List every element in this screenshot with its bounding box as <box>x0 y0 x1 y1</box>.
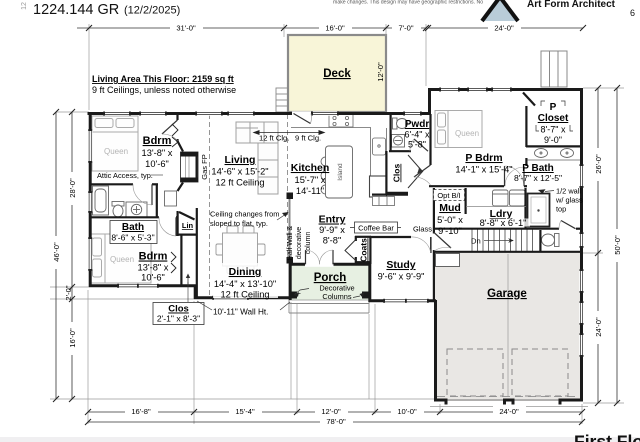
svg-text:Opt B/I: Opt B/I <box>437 191 460 200</box>
svg-text:9'-6" x 9'-9": 9'-6" x 9'-9" <box>378 272 425 282</box>
svg-text:Island: Island <box>337 163 344 181</box>
svg-text:P: P <box>550 102 557 113</box>
svg-text:9'-10": 9'-10" <box>438 226 462 236</box>
svg-text:1/2 wall: 1/2 wall <box>556 187 581 196</box>
svg-text:Attic Access, typ.: Attic Access, typ. <box>97 171 153 180</box>
svg-text:12 ft Ceiling: 12 ft Ceiling <box>220 290 269 300</box>
svg-text:Lin: Lin <box>182 221 194 230</box>
svg-text:5'-0" x: 5'-0" x <box>437 215 463 225</box>
svg-text:14'-11": 14'-11" <box>296 186 324 196</box>
svg-text:w/ glass: w/ glass <box>555 196 583 205</box>
svg-text:12'-0": 12'-0" <box>376 62 385 82</box>
svg-text:Porch: Porch <box>314 272 347 284</box>
svg-text:8'-8" x 6'-1": 8'-8" x 6'-1" <box>480 218 527 228</box>
svg-text:16'-8": 16'-8" <box>131 407 151 416</box>
svg-text:12: 12 <box>21 2 28 10</box>
svg-text:Living: Living <box>225 154 256 166</box>
svg-text:16'-0": 16'-0" <box>325 24 345 33</box>
svg-text:10'-6": 10'-6" <box>145 159 169 169</box>
svg-text:Coffee Bar: Coffee Bar <box>358 224 394 233</box>
svg-text:Deck: Deck <box>323 68 351 80</box>
svg-text:1224.144 GR: 1224.144 GR <box>33 2 119 18</box>
svg-text:14'-6" x 15'-2": 14'-6" x 15'-2" <box>211 167 268 177</box>
svg-text:First Floor: First Floor <box>574 432 640 442</box>
svg-text:24'-0": 24'-0" <box>499 407 519 416</box>
svg-text:8'-7" x: 8'-7" x <box>541 125 566 135</box>
svg-text:2'-1" x 8'-3": 2'-1" x 8'-3" <box>157 314 200 324</box>
svg-text:sloped to flat, typ.: sloped to flat, typ. <box>210 219 268 228</box>
svg-text:Dining: Dining <box>229 266 262 278</box>
svg-text:Coats: Coats <box>359 238 369 262</box>
svg-text:Columns: Columns <box>322 292 351 301</box>
svg-text:Pwdr: Pwdr <box>405 119 430 130</box>
svg-text:6'-4" x: 6'-4" x <box>405 130 430 140</box>
svg-text:78'-0": 78'-0" <box>326 417 346 426</box>
svg-text:Bdrm: Bdrm <box>139 251 168 263</box>
svg-text:Queen: Queen <box>455 129 479 138</box>
svg-text:14'-1" x 15'-4": 14'-1" x 15'-4" <box>455 165 512 175</box>
svg-text:decorative: decorative <box>296 227 303 259</box>
svg-text:7'-0": 7'-0" <box>398 24 413 33</box>
svg-text:12 ft Ceiling: 12 ft Ceiling <box>215 178 264 188</box>
svg-text:9 ft Ceilings, unless noted ot: 9 ft Ceilings, unless noted otherwise <box>92 85 236 95</box>
svg-text:Garage: Garage <box>487 288 527 300</box>
svg-text:26'-0": 26'-0" <box>594 154 603 174</box>
svg-text:Ceiling changes from: Ceiling changes from <box>210 210 279 219</box>
svg-text:Queen: Queen <box>110 255 134 264</box>
svg-text:50'-0": 50'-0" <box>613 235 622 255</box>
svg-text:15'-4": 15'-4" <box>235 407 255 416</box>
svg-text:12'-0": 12'-0" <box>321 407 341 416</box>
svg-text:8'-8": 8'-8" <box>323 236 342 246</box>
svg-text:Glass: Glass <box>413 225 432 234</box>
svg-text:16'-0": 16'-0" <box>68 328 77 348</box>
svg-text:Living Area This Floor: 2159 s: Living Area This Floor: 2159 sq ft <box>92 74 234 84</box>
svg-text:31'-0": 31'-0" <box>176 24 196 33</box>
svg-text:6: 6 <box>630 8 635 18</box>
svg-text:24'-0": 24'-0" <box>494 24 514 33</box>
svg-text:column: column <box>305 232 312 255</box>
svg-text:46'-0": 46'-0" <box>52 242 61 262</box>
svg-text:13'-8" x: 13'-8" x <box>138 263 169 273</box>
svg-text:8'-6" x 5'-3": 8'-6" x 5'-3" <box>111 233 154 243</box>
svg-text:Study: Study <box>386 259 415 271</box>
svg-text:Bdrm: Bdrm <box>143 135 172 147</box>
svg-text:Art Form Architect: Art Form Architect <box>527 0 616 10</box>
svg-text:12 ft Clg.: 12 ft Clg. <box>259 134 289 143</box>
svg-text:13'-8" x: 13'-8" x <box>142 148 173 158</box>
svg-text:Bath: Bath <box>122 222 144 233</box>
svg-text:2'-0": 2'-0" <box>64 285 73 300</box>
svg-text:Gas FP: Gas FP <box>200 154 209 179</box>
svg-text:10'-6": 10'-6" <box>141 273 165 283</box>
svg-text:top: top <box>556 205 566 214</box>
svg-text:Half Wall &: Half Wall & <box>287 225 294 260</box>
svg-text:Queen: Queen <box>104 147 128 156</box>
svg-text:15'-7" x: 15'-7" x <box>295 175 326 185</box>
svg-text:Dn: Dn <box>471 237 481 246</box>
svg-text:24'-0": 24'-0" <box>594 317 603 337</box>
svg-text:10'-11" Wall Ht.: 10'-11" Wall Ht. <box>213 308 268 317</box>
svg-text:14'-4" x 13'-10": 14'-4" x 13'-10" <box>214 279 276 289</box>
svg-text:9'-9" x: 9'-9" x <box>319 225 345 235</box>
svg-text:8'-7" x 12'-5": 8'-7" x 12'-5" <box>514 173 562 183</box>
svg-text:(12/2/2025): (12/2/2025) <box>124 5 180 17</box>
svg-text:28'-0": 28'-0" <box>68 178 77 198</box>
svg-text:Closet: Closet <box>538 113 569 124</box>
svg-text:P Bdrm: P Bdrm <box>465 152 502 164</box>
svg-text:9'-0": 9'-0" <box>544 135 562 145</box>
svg-text:Mud: Mud <box>439 202 461 214</box>
svg-text:make changes. This design may: make changes. This design may have geogr… <box>333 0 483 6</box>
svg-text:10'-0": 10'-0" <box>397 407 417 416</box>
svg-text:Kitchen: Kitchen <box>291 162 330 174</box>
svg-text:9 ft Clg.: 9 ft Clg. <box>295 134 321 143</box>
svg-text:5'-8": 5'-8" <box>408 140 426 150</box>
svg-text:Entry: Entry <box>319 214 346 226</box>
svg-text:Clos: Clos <box>392 164 402 183</box>
